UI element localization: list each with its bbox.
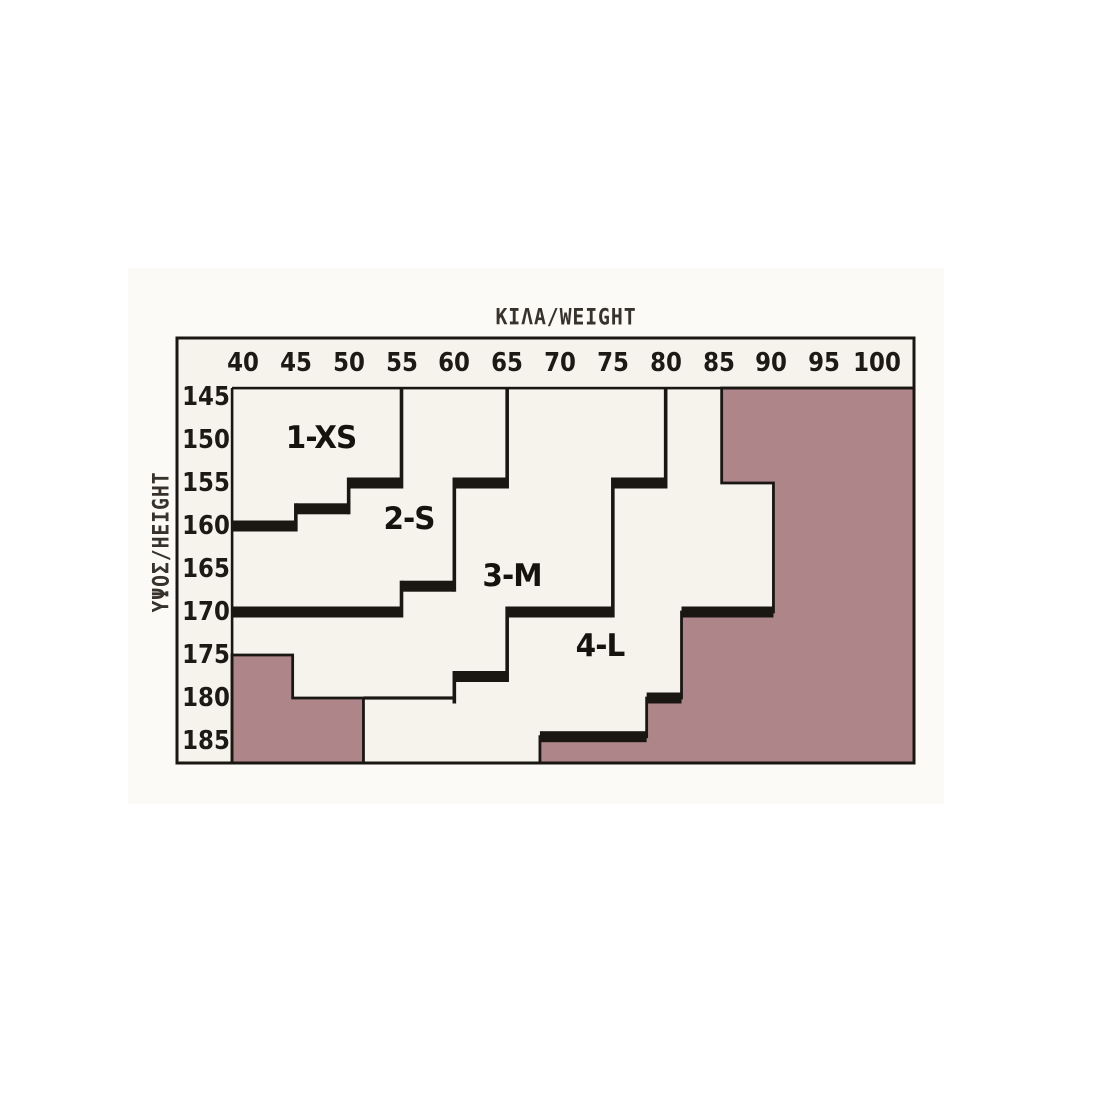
zone-label-3-m: 3-M [483,558,542,594]
height-tick-185: 185 [182,726,230,756]
height-tick-170: 170 [182,597,230,627]
header-divider [232,387,914,390]
boundary-3-m-4-l [505,607,509,683]
zone-label-4-l: 4-L [576,628,625,664]
zone-label-2-s: 2-S [383,501,434,537]
height-tick-155: 155 [182,468,230,498]
weight-tick-50: 50 [333,348,365,378]
weight-tick-90: 90 [755,348,787,378]
boundary-4-l-out-of-range [682,607,774,618]
height-tick-145: 145 [182,382,230,412]
boundary-3-m-4-l [507,607,613,618]
boundary-4-l-out-of-range [540,731,647,742]
weight-tick-40: 40 [227,348,259,378]
height-tick-165: 165 [182,554,230,584]
boundary-1-xs-2-s [400,388,404,489]
x-axis-title: ΚΙΛΑ/WEIGHT [495,306,636,331]
boundary-1-xs-2-s [232,521,296,532]
label-column-divider [231,388,234,763]
boundary-2-s-3-m [453,478,457,592]
weight-tick-75: 75 [597,348,629,378]
weight-tick-65: 65 [491,348,523,378]
boundary-3-m-4-l [454,671,507,682]
size-chart-figure: ΚΙΛΑ/WEIGHT ΥΨΟΣ/HEIGHT 4045505560657075… [0,0,1100,1100]
weight-tick-80: 80 [650,348,682,378]
weight-tick-60: 60 [438,348,470,378]
boundary-2-s-3-m [454,478,507,489]
zone-label-1-xs: 1-XS [286,420,356,456]
boundary-3-m-4-l [613,478,666,489]
boundary-3-m-4-l [611,478,615,618]
weight-tick-85: 85 [703,348,735,378]
boundary-3-m-4-l [363,696,454,699]
weight-tick-95: 95 [808,348,840,378]
height-tick-180: 180 [182,683,230,713]
y-axis-title: ΥΨΟΣ/HEIGHT [150,471,175,612]
weight-tick-100: 100 [853,348,901,378]
height-tick-160: 160 [182,511,230,541]
boundary-2-s-3-m [232,607,402,618]
height-tick-175: 175 [182,640,230,670]
weight-tick-45: 45 [280,348,312,378]
weight-tick-55: 55 [386,348,418,378]
boundary-1-xs-2-s [349,478,402,489]
height-tick-150: 150 [182,425,230,455]
boundary-4-l-out-of-range [647,693,682,704]
boundary-1-xs-2-s [296,503,349,514]
boundary-3-m-4-l [664,388,668,489]
weight-tick-70: 70 [544,348,576,378]
boundary-2-s-3-m [402,581,455,592]
boundary-2-s-3-m [505,388,509,489]
